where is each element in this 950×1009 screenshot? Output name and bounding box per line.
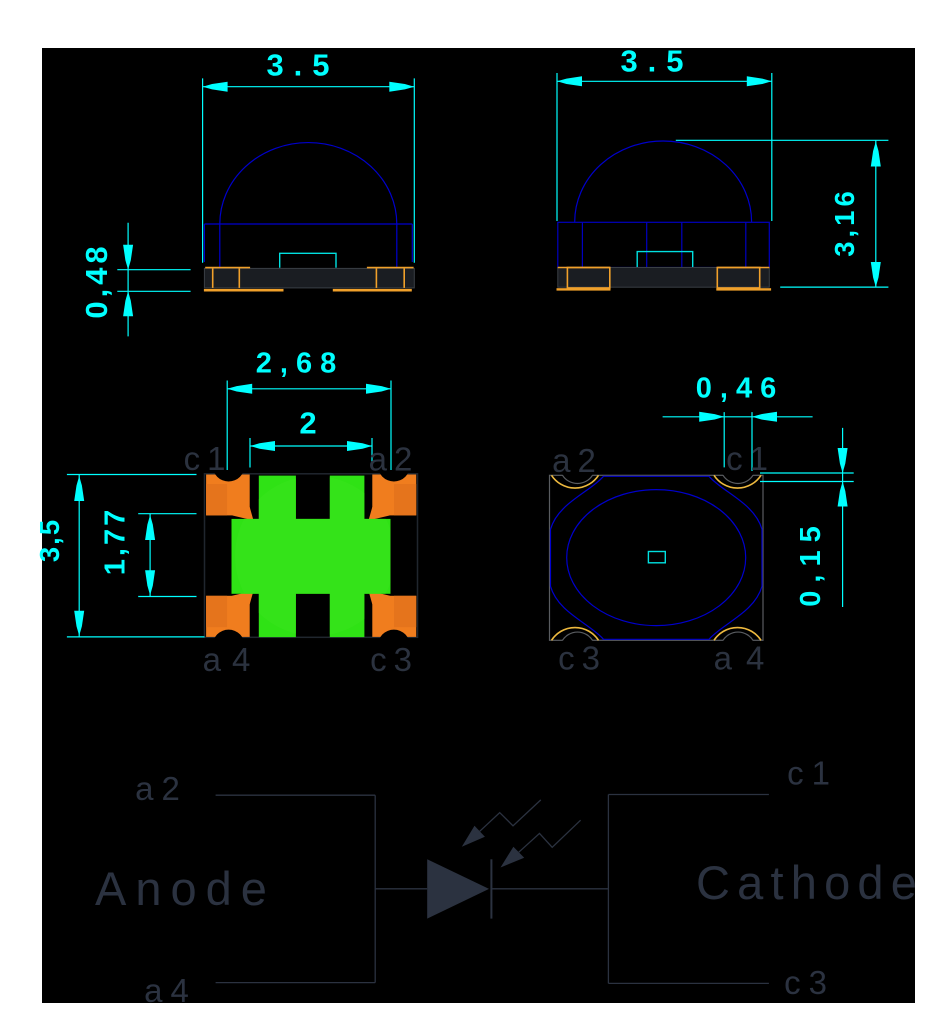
svg-text:0,15: 0,15 (795, 518, 827, 606)
svg-text:c3: c3 (370, 641, 419, 678)
svg-text:2: 2 (299, 406, 324, 441)
svg-text:3,16: 3,16 (829, 187, 860, 257)
svg-text:Cathode: Cathode (696, 856, 924, 909)
svg-text:2,68: 2,68 (256, 348, 344, 380)
svg-text:c3: c3 (784, 964, 835, 1001)
svg-text:c3: c3 (558, 640, 607, 677)
svg-text:a2: a2 (552, 442, 603, 479)
svg-text:a4: a4 (714, 640, 779, 677)
svg-text:c1: c1 (184, 440, 233, 477)
svg-text:3,5: 3,5 (34, 518, 65, 562)
svg-text:c1: c1 (787, 755, 838, 792)
svg-text:3.5: 3.5 (266, 48, 339, 83)
svg-text:0,46: 0,46 (696, 373, 784, 405)
svg-text:a2: a2 (369, 441, 420, 478)
svg-text:1,77: 1,77 (100, 507, 132, 575)
svg-text:a2: a2 (135, 770, 188, 807)
svg-text:0,48: 0,48 (79, 242, 114, 318)
svg-text:c1: c1 (726, 440, 775, 477)
svg-text:3.5: 3.5 (620, 43, 693, 78)
svg-text:Anode: Anode (95, 862, 276, 915)
svg-text:a4: a4 (144, 972, 197, 1009)
svg-text:a4: a4 (203, 641, 262, 678)
